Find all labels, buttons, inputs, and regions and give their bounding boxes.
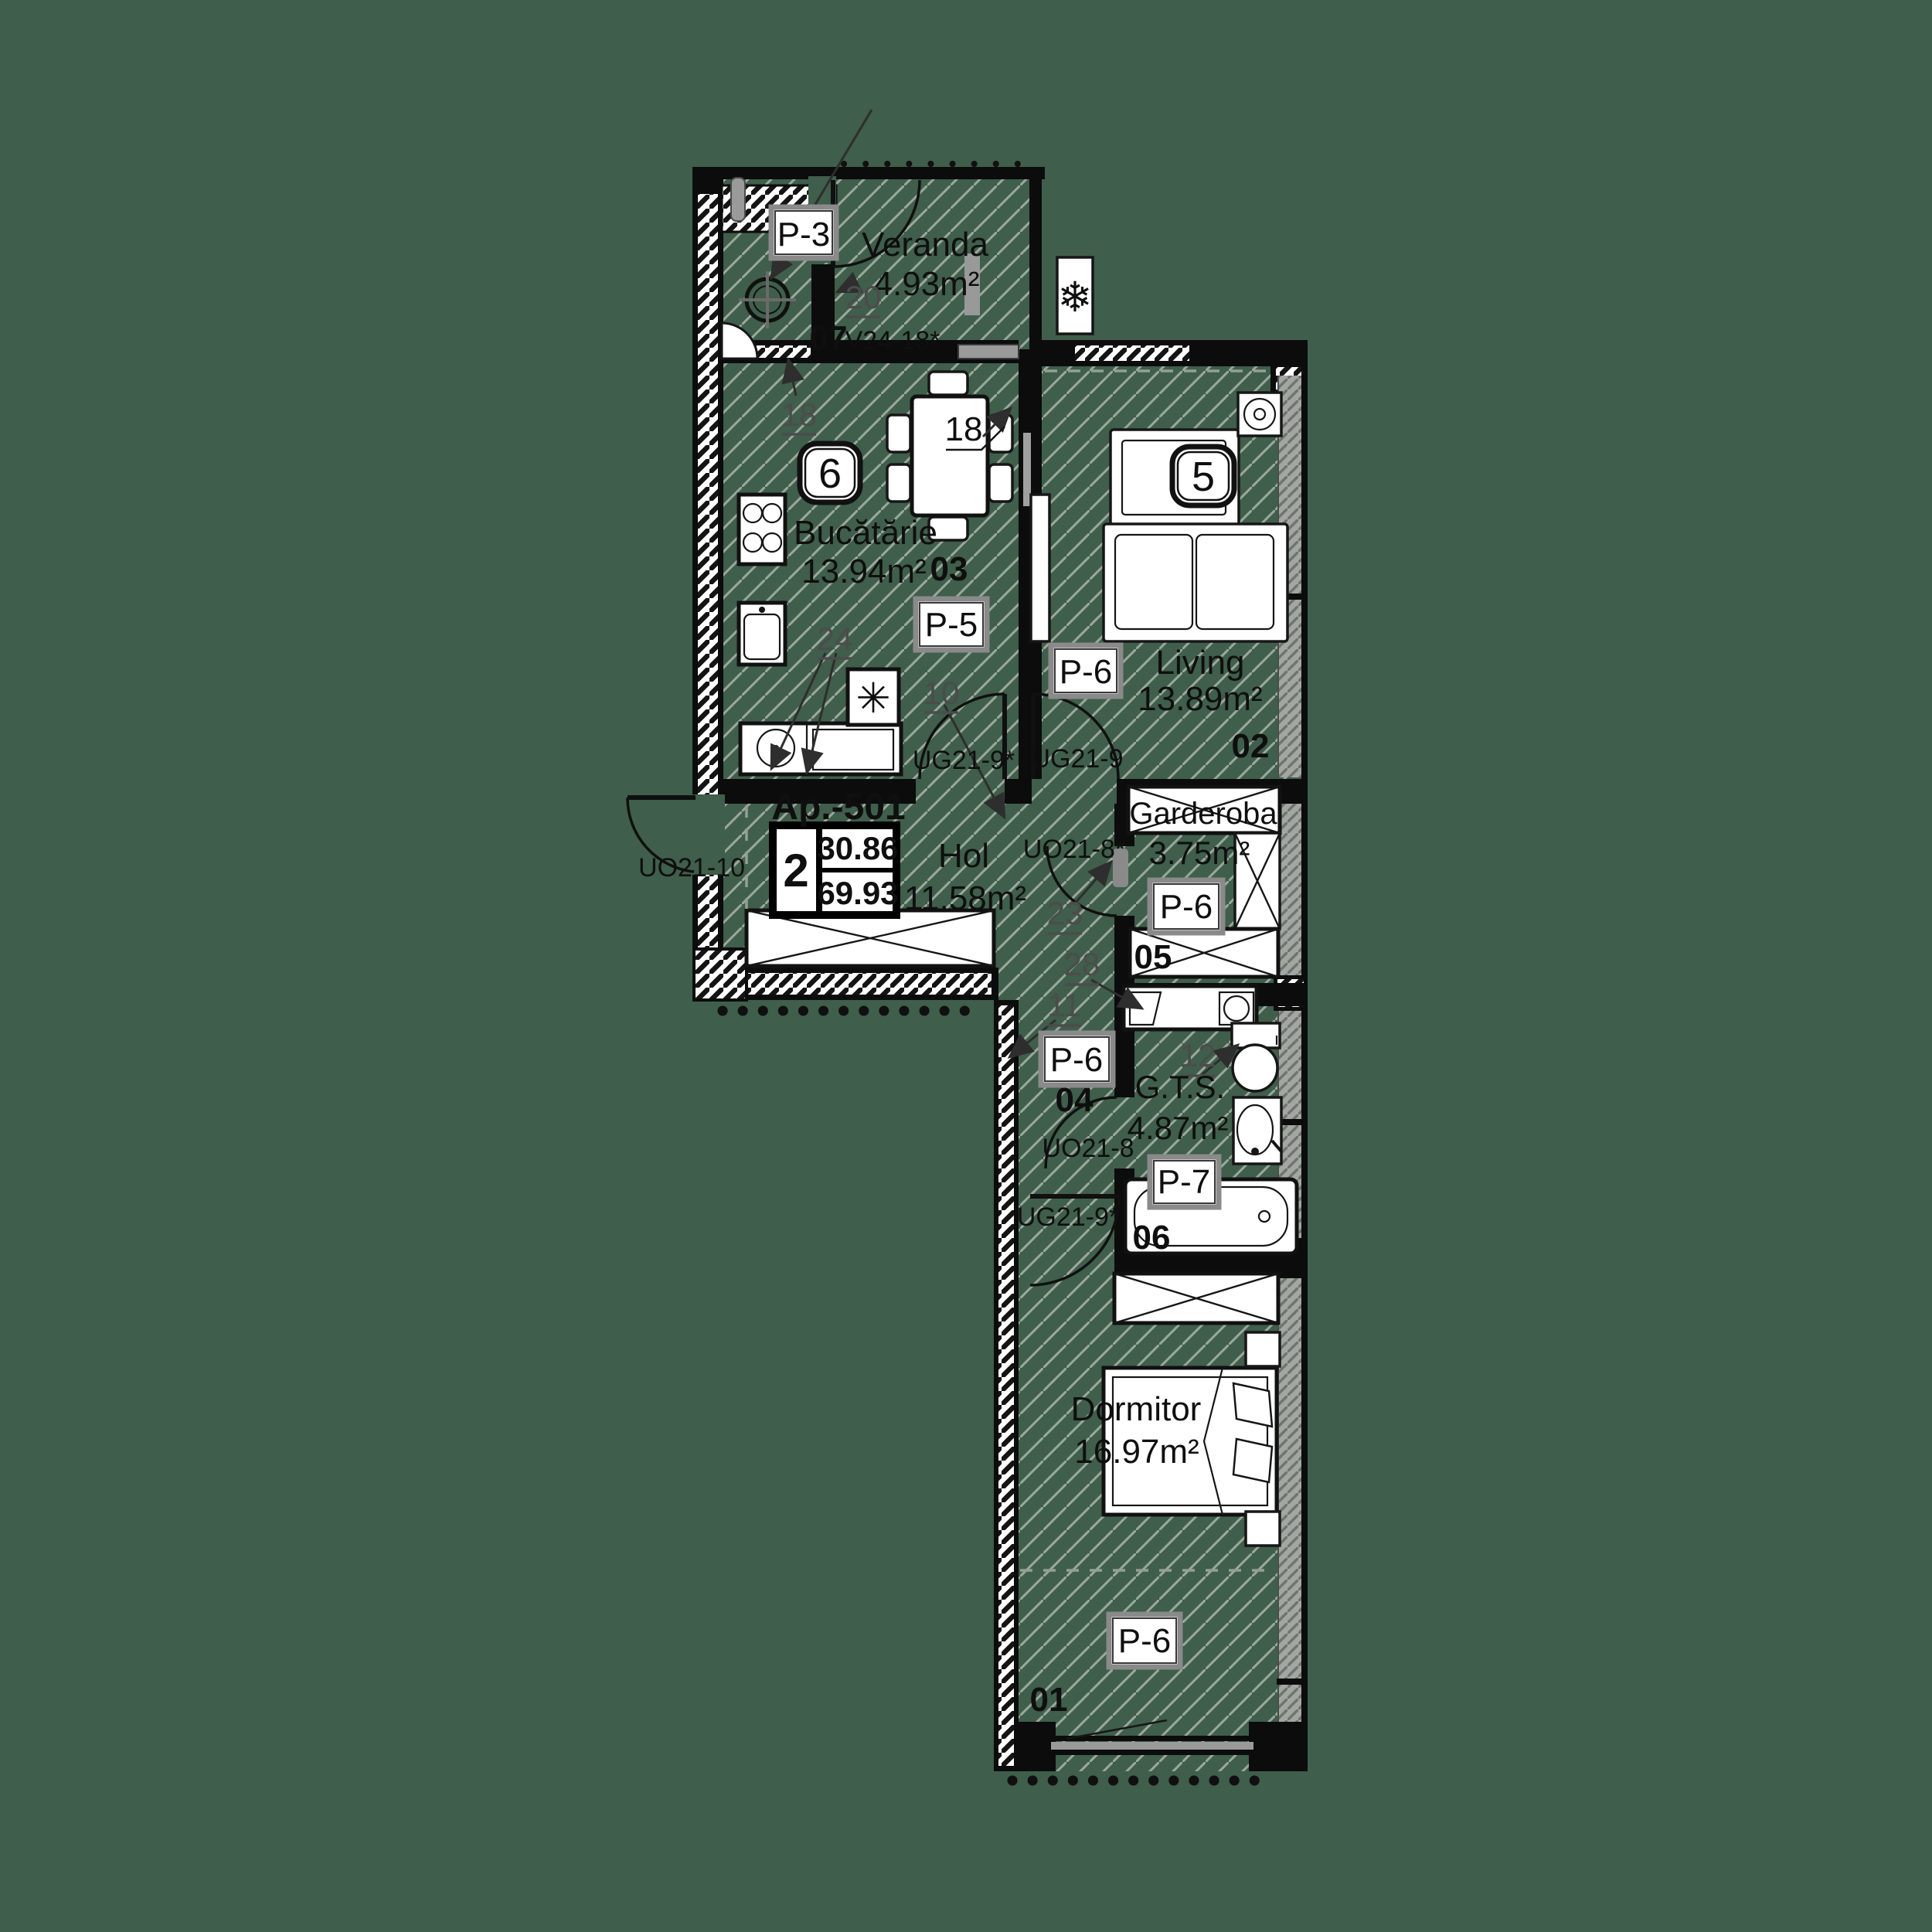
badge-living: 5	[1172, 447, 1234, 505]
badge-kitchen: 6	[800, 444, 860, 502]
room-name-bucatarie: Bucătărie	[794, 514, 937, 552]
marker-bath: 12	[1180, 1037, 1216, 1073]
chair	[989, 464, 1012, 502]
wall-hol-top-b	[1005, 779, 1032, 804]
room-number-bucatarie: 03	[930, 550, 968, 588]
floor-plan: ❄ ✳	[0, 0, 1932, 1932]
room-number-hol: 04	[1056, 1081, 1094, 1119]
door-code-garderoba: UO21-8*	[1023, 835, 1125, 864]
finish-label-living-text: P-6	[1060, 653, 1112, 691]
finish-label-living: P-6	[1051, 645, 1121, 696]
finish-label-gts: P-7	[1150, 1157, 1219, 1207]
marker-kitchen-table: 18	[945, 410, 983, 448]
ac-icon: ❄	[1057, 274, 1092, 321]
window-veranda-kitchen	[958, 345, 1019, 359]
finish-label-veranda-text: P-3	[777, 216, 830, 253]
badge-living-text: 5	[1192, 454, 1215, 500]
window-dormitor	[1278, 1277, 1301, 1722]
badge-kitchen-text: 6	[818, 451, 842, 497]
apartment-area-total: 69.93	[817, 875, 898, 911]
floor-plan-canvas: ❄ ✳	[0, 0, 1932, 1932]
window-bottom-glass	[1051, 1742, 1253, 1750]
marker-hol-wall: 28	[1064, 946, 1100, 982]
room-name-hol: Hol	[938, 837, 989, 875]
room-name-garderoba: Garderoba	[1129, 797, 1277, 831]
side-table-lamp	[1238, 393, 1281, 436]
room-name-dormitor: Dormitor	[1071, 1390, 1202, 1428]
tv-board	[1031, 495, 1049, 641]
finish-label-garderoba-text: P-6	[1160, 888, 1213, 926]
kitchen-counter	[740, 723, 901, 774]
room-number-gts: 06	[1133, 1219, 1171, 1257]
wall-exterior-right	[1301, 340, 1308, 1771]
door-code-living: UG21-9	[1031, 744, 1123, 774]
door-code-gts: UO21-8	[1042, 1134, 1134, 1163]
finish-label-hol-text: P-6	[1050, 1041, 1103, 1079]
door-code-kitchen: UG21-9*	[913, 746, 1015, 775]
room-name-gts: G.T.S.	[1135, 1069, 1226, 1105]
window-code-veranda: V24-18*	[845, 326, 940, 355]
stove	[739, 495, 785, 564]
wall-living-top-hatch	[1074, 345, 1190, 362]
fridge-icon: ✳	[855, 675, 890, 722]
room-name-living: Living	[1156, 644, 1245, 682]
room-area-garderoba: 3.75m²	[1149, 835, 1250, 871]
room-area-dormitor: 16.97m²	[1074, 1433, 1199, 1471]
room-area-gts: 4.87m²	[1128, 1110, 1229, 1146]
wall-corner-step	[694, 949, 747, 1000]
wall-hol-bottom-hatch	[747, 972, 992, 995]
chair	[887, 415, 910, 452]
marker-kitchen-counter: 24	[817, 621, 853, 657]
nightstand	[1246, 1332, 1280, 1366]
finish-label-bucatarie-text: P-5	[925, 606, 978, 644]
door-code-entry: UO21-10	[638, 853, 745, 883]
room-area-bucatarie: 13.94m²	[801, 553, 926, 590]
room-number-dormitor: 01	[1030, 1681, 1068, 1719]
room-name-veranda: Veranda	[862, 226, 988, 264]
wall-exterior-left-lower-hatch	[998, 1005, 1015, 1767]
nightstand	[1246, 1512, 1280, 1546]
mullion-3	[1277, 1679, 1303, 1685]
apartment-label: Ap.-501	[771, 787, 905, 828]
apartment-info-box: 2 30.86 69.93	[773, 825, 899, 915]
marker-hol-door: 23	[1047, 895, 1083, 931]
finish-label-dormitor-text: P-6	[1118, 1622, 1171, 1660]
fridge: ✳	[848, 669, 899, 725]
chair	[887, 464, 910, 502]
chair	[929, 372, 968, 395]
pillow	[1233, 1439, 1272, 1482]
apartment-area-useful: 30.86	[817, 830, 898, 866]
marker-kitchen-door: 10	[923, 675, 960, 711]
finish-label-hol: P-6	[1041, 1033, 1113, 1085]
wall-veranda-right	[1029, 167, 1042, 349]
wall-bottom-right-block	[1249, 1722, 1308, 1771]
wall-top	[692, 167, 1045, 179]
finish-label-gts-text: P-7	[1158, 1163, 1210, 1201]
ac-unit: ❄	[1057, 257, 1093, 334]
wall-vent-grille	[731, 178, 745, 221]
marker-corridor: 11	[1047, 987, 1081, 1023]
room-area-hol: 11.58m²	[904, 879, 1026, 917]
kitchen-sink-unit	[739, 603, 785, 665]
marker-kitchen-wall: 18	[781, 396, 818, 433]
finish-label-dormitor: P-6	[1109, 1614, 1180, 1667]
finish-label-garderoba: P-6	[1150, 880, 1223, 933]
room-number-garderoba: 05	[1134, 938, 1172, 976]
room-area-living: 13.89m²	[1138, 680, 1262, 718]
apartment-rooms-count: 2	[783, 845, 808, 896]
finish-label-bucatarie: P-5	[916, 599, 987, 650]
chair	[989, 415, 1012, 452]
marker-veranda: 20	[845, 279, 882, 315]
toilet	[1232, 1023, 1280, 1091]
window-bottom-frame-b	[1051, 1750, 1253, 1755]
room-number-veranda: 07	[810, 319, 848, 357]
room-number-living: 02	[1232, 727, 1270, 765]
door-code-dormitor: UG21-9*	[1017, 1202, 1119, 1232]
dormitor-wardrobe	[1114, 1274, 1278, 1323]
bath-sink	[1233, 1097, 1281, 1164]
room-area-veranda: 4.93m²	[874, 265, 980, 303]
finish-label-veranda: P-3	[771, 207, 836, 258]
pillow	[1233, 1383, 1272, 1427]
